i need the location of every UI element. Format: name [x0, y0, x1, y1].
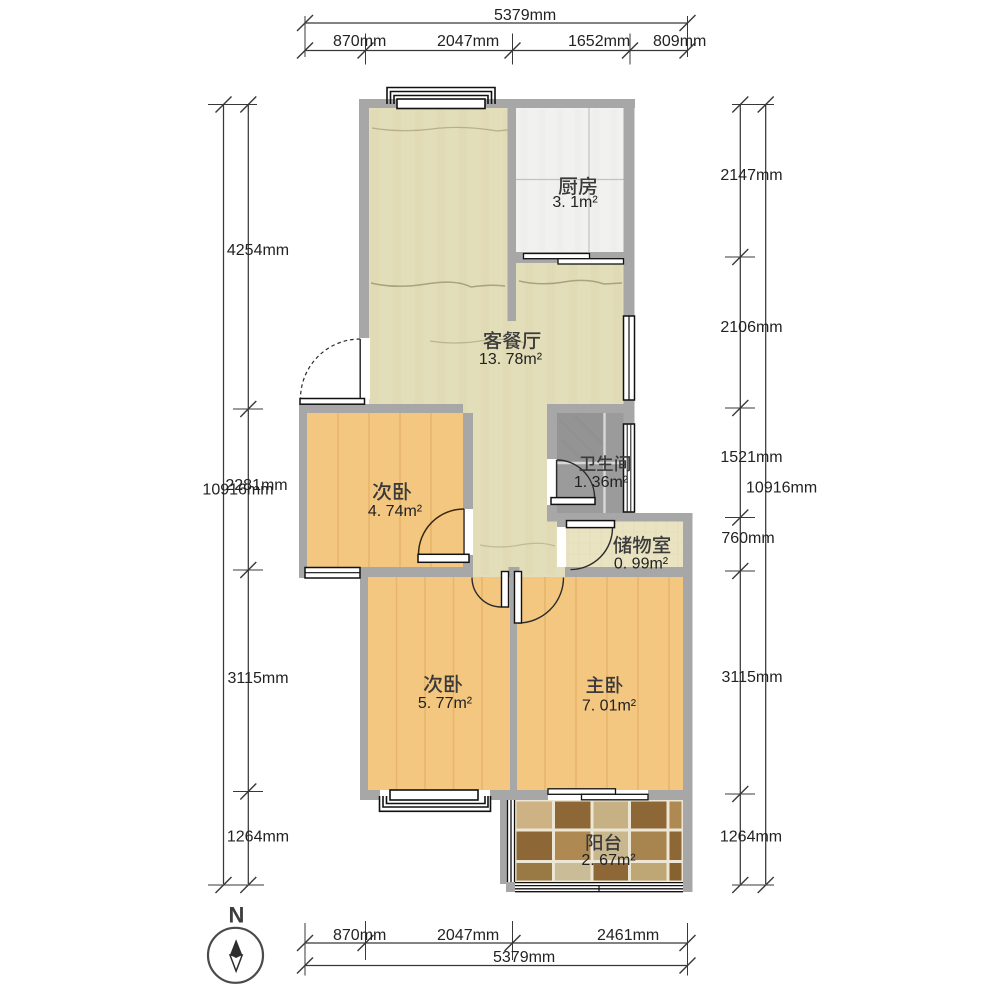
svg-text:10916mm: 10916mm — [746, 480, 817, 497]
svg-text:2147mm: 2147mm — [720, 167, 782, 184]
svg-text:1264mm: 1264mm — [227, 829, 289, 846]
svg-text:0. 99m²: 0. 99m² — [614, 556, 669, 573]
svg-text:2106mm: 2106mm — [720, 319, 782, 336]
svg-text:N: N — [229, 903, 245, 928]
svg-text:13. 78m²: 13. 78m² — [479, 351, 543, 368]
svg-text:2461mm: 2461mm — [597, 927, 659, 944]
svg-text:2047mm: 2047mm — [437, 927, 499, 944]
svg-text:760mm: 760mm — [721, 530, 774, 547]
svg-text:3115mm: 3115mm — [721, 669, 782, 686]
svg-text:870mm: 870mm — [333, 33, 386, 50]
svg-text:5379mm: 5379mm — [493, 949, 555, 966]
svg-text:809mm: 809mm — [653, 33, 706, 50]
svg-text:2047mm: 2047mm — [437, 33, 499, 50]
svg-text:2. 67m²: 2. 67m² — [581, 852, 636, 869]
svg-text:1. 36m²: 1. 36m² — [574, 474, 629, 491]
svg-text:3115mm: 3115mm — [227, 670, 288, 687]
svg-text:7. 01m²: 7. 01m² — [582, 698, 637, 715]
svg-text:10916mm: 10916mm — [202, 482, 273, 499]
svg-text:1521mm: 1521mm — [720, 449, 782, 466]
svg-text:1652mm: 1652mm — [568, 33, 630, 50]
svg-text:1264mm: 1264mm — [720, 829, 782, 846]
svg-text:870mm: 870mm — [333, 927, 386, 944]
svg-text:4254mm: 4254mm — [227, 242, 289, 259]
svg-text:3. 1m²: 3. 1m² — [552, 194, 598, 211]
svg-text:5. 77m²: 5. 77m² — [418, 695, 473, 712]
svg-text:4. 74m²: 4. 74m² — [368, 503, 423, 520]
svg-text:5379mm: 5379mm — [494, 7, 556, 24]
